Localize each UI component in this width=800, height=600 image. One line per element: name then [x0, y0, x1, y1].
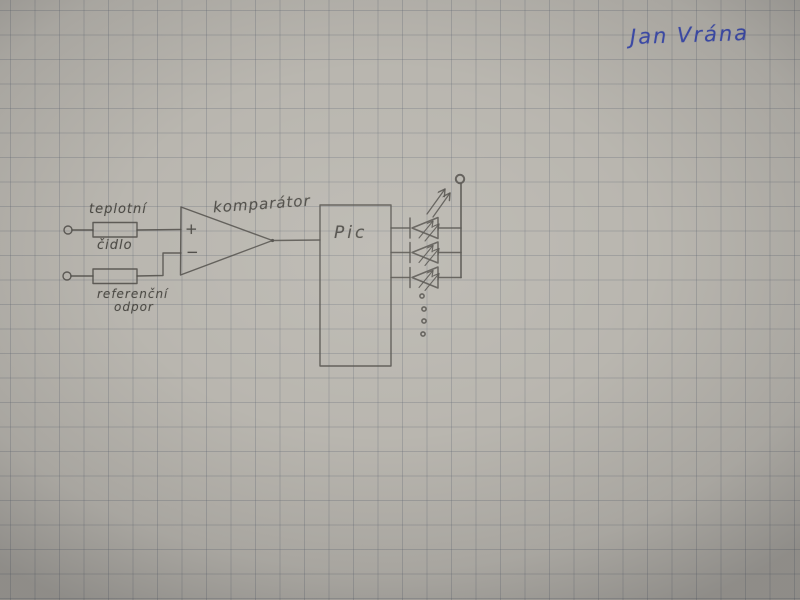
wire: [137, 230, 181, 231]
wire: [137, 253, 181, 276]
comparator-plus-input-label: +: [185, 222, 199, 237]
continuation-dots: [420, 294, 426, 336]
label-temperature-sensor-line2: čidlo: [97, 239, 133, 252]
label-reference-resistor-line1: referenční: [97, 288, 168, 300]
input-terminal-top: [64, 226, 72, 234]
comparator-output-wire: [273, 240, 321, 241]
emission-arrows-large: [427, 189, 450, 217]
label-pic-microcontroller: Pic: [334, 225, 367, 242]
photo-of-schematic: teplotní čidlo referenční odpor komparát…: [0, 0, 800, 600]
supply-terminal: [456, 175, 464, 183]
led-3: [410, 267, 461, 291]
handwritten-signature: Jan Vrána: [630, 23, 750, 48]
led-1: [410, 218, 461, 242]
reference-resistor: [93, 269, 137, 284]
input-terminal-bottom: [63, 272, 71, 280]
comparator-minus-input-label: −: [186, 245, 200, 260]
temperature-sensor-resistor: [93, 223, 137, 238]
led-2: [410, 242, 461, 266]
comparator-triangle: [181, 207, 275, 275]
label-reference-resistor-line2: odpor: [114, 301, 154, 313]
label-temperature-sensor-line1: teplotní: [89, 203, 147, 216]
